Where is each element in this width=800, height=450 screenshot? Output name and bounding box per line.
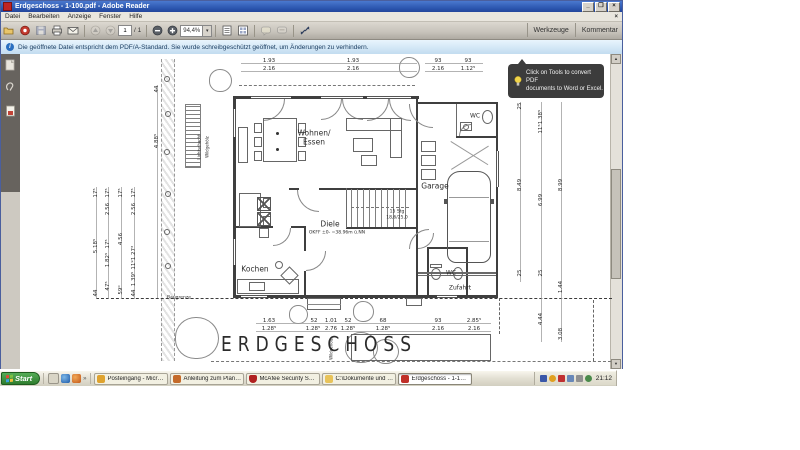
plan-label: Garage (421, 182, 448, 191)
plan-dimension-label: 2.16 (432, 66, 444, 72)
plan-drawing-element (353, 301, 374, 322)
plan-drawing-element (406, 298, 422, 306)
plan-dimension-label: 2.16 (263, 66, 275, 72)
tooltip-caret (518, 59, 526, 64)
plan-drawing-element (405, 189, 406, 227)
plan-dimension-label: 1.12⁵ (461, 66, 475, 72)
adobe-reader-window: Erdgeschoss - 1-100.pdf - Adobe Reader _… (0, 0, 623, 369)
plan-drawing-element (157, 85, 158, 298)
plan-dimension-label: 25 (538, 270, 544, 277)
plan-drawing-element (449, 241, 489, 242)
plan-drawing-element (375, 189, 376, 227)
plan-dimension-label: 25 (517, 103, 523, 110)
taskbar-button-label: Erdgeschoss - 1-100... (411, 376, 469, 382)
plan-dimension-label: 59⁰ (118, 285, 124, 294)
plan-drawing-element (421, 169, 436, 180)
plan-dimension-label: 1.01 (325, 318, 337, 324)
taskbar-button[interactable]: Posteingang - Microsoft ... (94, 373, 168, 385)
plan-drawing-element (520, 102, 521, 282)
plan-drawing-element (393, 189, 394, 227)
plan-drawing-element (304, 226, 306, 251)
lightbulb-icon (514, 76, 522, 87)
system-tray: 21:12 (534, 372, 616, 385)
taskbar-button-label: McAfee Security Scan Plus (259, 376, 317, 382)
start-button[interactable]: Start (1, 372, 40, 385)
plan-drawing-element (482, 110, 493, 124)
plan-drawing-element (249, 282, 265, 291)
plan-dimension-label: 17⁵ (105, 188, 111, 197)
plan-dimension-label: 68 (380, 318, 387, 324)
plan-dimension-label: 25 (517, 270, 523, 277)
adobe-icon (401, 375, 409, 383)
plan-drawing-element (165, 111, 171, 117)
plan-drawing-element (361, 155, 377, 166)
plan-drawing-element (289, 305, 308, 324)
plan-drawing-element (307, 304, 341, 305)
plan-drawing-element (165, 191, 171, 197)
plan-dimension-label: 4.88⁵ (154, 134, 160, 148)
plan-dimension-label: 2.56 (131, 203, 137, 215)
plan-dimension-label: 1.28⁵ (341, 326, 355, 332)
plan-drawing-element (399, 57, 420, 78)
plan-dimension-label: 17⁵ (105, 239, 111, 248)
plan-drawing-element (456, 104, 457, 136)
plan-drawing-element (421, 141, 436, 152)
plan-drawing-element (256, 323, 491, 324)
plan-drawing-element (257, 212, 271, 226)
taskbar-button[interactable]: C:\Dokumente und Einst... (322, 373, 396, 385)
plan-dimension-label: 1.28⁵ (376, 326, 390, 332)
plan-dimension-label: 2.16 (347, 66, 359, 72)
plan-drawing-element (256, 331, 491, 332)
plan-drawing-element (306, 251, 326, 271)
plan-dimension-label: 8.49 (517, 179, 523, 191)
tray-icon-display[interactable] (567, 375, 574, 382)
show-desktop-icon[interactable] (48, 373, 59, 384)
plan-dimension-label: 44 (93, 290, 99, 297)
plan-drawing-element (297, 190, 319, 212)
outlook-icon (97, 375, 105, 383)
plan-dimension-label: 93 (435, 58, 442, 64)
tray-icon-language[interactable] (540, 375, 547, 382)
plan-dimension-label: 1.63 (263, 318, 275, 324)
tools-tooltip: Click on Tools to convert PDF documents … (508, 64, 604, 98)
plan-drawing-element (342, 99, 363, 120)
plan-dimension-label: 6.99 (538, 194, 544, 206)
plan-dimension-label: 2.16 (468, 326, 480, 332)
desktop: Erdgeschoss - 1-100.pdf - Adobe Reader _… (0, 0, 800, 450)
plan-label: Lichtschacht (197, 134, 202, 159)
windows-logo-icon (6, 375, 13, 383)
plan-dimension-label: 5.18⁵ (93, 239, 99, 253)
taskbar-button-label: C:\Dokumente und Einst... (335, 376, 393, 382)
taskbar-button[interactable]: Erdgeschoss - 1-100... (398, 373, 472, 385)
plan-drawing-element (164, 76, 170, 82)
plan-drawing-element (390, 118, 402, 158)
plan-label: WC (470, 113, 480, 120)
plan-drawing-element (346, 227, 417, 229)
plan-drawing-element (351, 189, 352, 227)
taskbar-button-label: Posteingang - Microsoft ... (107, 376, 165, 382)
taskbar-button[interactable]: Anleitung zum Planungs-... (170, 373, 244, 385)
plan-label: OKFF ±0- =38.96m ü.NN (309, 231, 365, 236)
plan-drawing-element (233, 295, 498, 298)
plan-label: Wohnen/ (298, 129, 331, 138)
plan-drawing-element (399, 189, 400, 227)
plan-drawing-element (238, 127, 248, 163)
plan-drawing-element (451, 146, 489, 170)
plan-dimension-label: 2.16 (432, 326, 444, 332)
plan-drawing-element (259, 228, 269, 238)
plan-label: Wildgehölz (329, 338, 334, 360)
taskbar-button-label: Anleitung zum Planungs-... (183, 376, 241, 382)
plan-drawing-element (175, 317, 219, 359)
plan-drawing-element (291, 226, 305, 228)
plan-dimension-label: 44 (131, 290, 137, 297)
plan-drawing-element (276, 132, 279, 135)
plan-drawing-element (437, 295, 457, 298)
plan-drawing-element (209, 69, 232, 92)
plan-drawing-element (346, 188, 347, 228)
tray-icon-network[interactable] (585, 375, 592, 382)
tray-clock[interactable]: 21:12 (596, 375, 612, 382)
plan-dimension-label: 47⁵ (105, 281, 111, 290)
plan-label: Essen (303, 138, 325, 147)
plan-dimension-label: 4.44 (538, 313, 544, 325)
plan-dimension-label: 1.28⁵ (262, 326, 276, 332)
plan-dimension-label: 3.08 (558, 328, 564, 340)
plan-drawing-element (276, 148, 279, 151)
plan-dimension-label: 2.85⁵ (467, 318, 481, 324)
plan-drawing-element (239, 85, 415, 86)
plan-label: Kochen (241, 265, 268, 274)
plan-label: Wildgehölz (205, 136, 210, 158)
task-buttons: Posteingang - Microsoft ...Anleitung zum… (94, 373, 472, 385)
plan-dimension-label: 93 (435, 318, 442, 324)
plan-dimension-label: 1.28⁵ (306, 326, 320, 332)
plan-dimension-label: 11⁹ (131, 260, 137, 269)
plan-drawing-element (491, 199, 494, 204)
plan-drawing-element (161, 59, 175, 361)
plan-drawing-element (416, 96, 418, 297)
plan-dimension-label: 44 (154, 86, 160, 93)
plan-drawing-element (304, 271, 306, 297)
plan-drawing-element (450, 141, 488, 165)
plan-drawing-element (431, 268, 441, 280)
quick-launch-overflow-icon[interactable]: » (83, 376, 86, 382)
plan-dimension-label: 93 (465, 58, 472, 64)
plan-drawing-element (241, 295, 267, 298)
plan-dimension-label: 52 (345, 318, 352, 324)
plan-label: Diele (320, 220, 339, 229)
plan-drawing-element (165, 263, 171, 269)
plan-drawing-element (211, 361, 611, 362)
plan-dimension-label: 17⁵ (118, 188, 124, 197)
plan-dimension-label: 1.93 (347, 58, 359, 64)
plan-drawing-element (409, 104, 433, 128)
taskbar: Start » Posteingang - Microsoft ...Anlei… (0, 370, 617, 386)
plan-dimension-label: 1.93 (263, 58, 275, 64)
firefox-icon[interactable] (72, 374, 81, 383)
plan-drawing-element (387, 189, 388, 227)
plan-dimension-label: 1.82⁵ (105, 253, 111, 267)
plan-drawing-element (263, 118, 297, 162)
plan-drawing-element (363, 189, 364, 227)
plan-dimension-label: 4.56 (118, 233, 124, 245)
plan-dimension-label: 2.56 (105, 203, 111, 215)
plan-drawing-element (254, 151, 262, 161)
quick-launch: » (43, 373, 91, 384)
plan-drawing-element (357, 189, 358, 227)
plan-label: Baugrenze (167, 296, 191, 301)
plan-dimension-label: 1.39⁵ (131, 272, 137, 286)
doc-icon (173, 375, 181, 383)
plan-drawing-element (541, 102, 542, 342)
plan-dimension-label: 11⁵ (538, 124, 544, 133)
plan-drawing-element (254, 123, 262, 133)
plan-drawing-element (447, 171, 491, 263)
plan-dimension-label: 17⁵ (93, 188, 99, 197)
floor-plan[interactable]: Wohnen/EssenKochenDieleOKFF ±0- =38.96m … (1, 1, 624, 370)
plan-drawing-element (164, 149, 170, 155)
plan-drawing-element (275, 261, 283, 269)
internet-explorer-icon[interactable] (61, 374, 70, 383)
plan-drawing-element (257, 197, 271, 211)
tray-icon-update[interactable] (549, 375, 556, 382)
plan-dimension-label: 1.27³ (131, 246, 137, 260)
plan-drawing-element (298, 151, 306, 161)
plan-drawing-element (321, 99, 342, 120)
plan-label: Zufahrt (449, 285, 471, 292)
tooltip-line2: documents to Word or Excel. (526, 86, 603, 92)
plan-label: WC (446, 270, 456, 277)
plan-dimension-label: 2.76 (325, 326, 337, 332)
tray-icon-security[interactable] (558, 375, 565, 382)
plan-dimension-label: 52 (311, 318, 318, 324)
plan-dimension-label: 8.99 (558, 179, 564, 191)
plan-label: ERDGESCHOSS (221, 333, 417, 357)
folder-icon (325, 375, 333, 383)
plan-drawing-element (273, 228, 291, 246)
plan-drawing-element (496, 102, 498, 297)
plan-drawing-element (381, 189, 382, 227)
plan-drawing-element (496, 151, 499, 187)
tooltip-line1: Click on Tools to convert PDF (526, 70, 591, 84)
plan-drawing-element (444, 199, 447, 204)
plan-drawing-element (593, 300, 594, 361)
plan-drawing-element (353, 138, 373, 152)
start-label: Start (15, 374, 32, 383)
plan-drawing-element (233, 109, 236, 137)
plan-drawing-element (421, 155, 436, 166)
plan-drawing-element (254, 137, 262, 147)
plan-drawing-element (499, 298, 500, 334)
mcafee-icon (249, 375, 257, 383)
plan-dimension-label: 17⁵ (131, 188, 137, 197)
plan-drawing-element (561, 102, 562, 342)
plan-drawing-element (233, 239, 236, 265)
plan-drawing-element (369, 189, 370, 227)
plan-drawing-element (449, 197, 489, 198)
plan-label: 18,6/25,0 (386, 216, 408, 221)
plan-dimension-label: 1.44 (558, 281, 564, 293)
plan-drawing-element (164, 229, 170, 235)
plan-drawing-element (463, 124, 469, 130)
taskbar-button[interactable]: McAfee Security Scan Plus (246, 373, 320, 385)
tray-icon-volume[interactable] (576, 375, 583, 382)
plan-drawing-element (456, 136, 497, 138)
plan-dimension-label: 1.38⁵ (538, 110, 544, 124)
plan-drawing-element (351, 207, 409, 208)
plan-label: 15 Stg (390, 210, 405, 215)
plan-drawing-element (319, 188, 417, 190)
